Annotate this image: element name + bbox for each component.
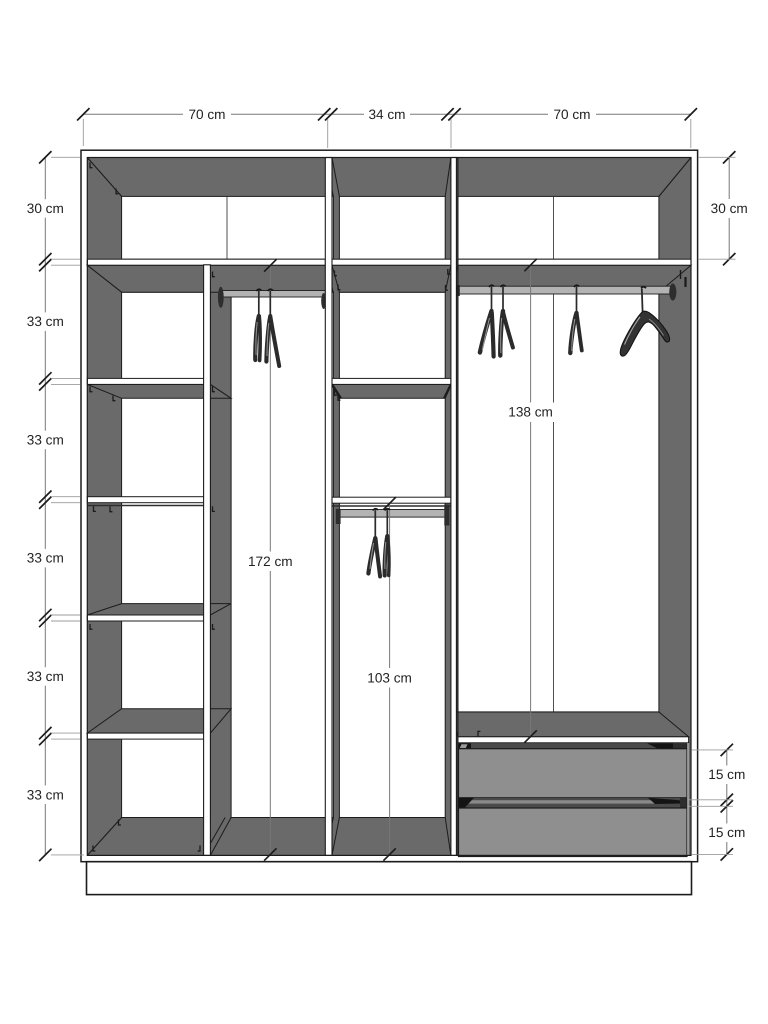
svg-text:70 cm: 70 cm bbox=[188, 107, 225, 122]
svg-text:33 cm: 33 cm bbox=[27, 551, 64, 566]
svg-text:15 cm: 15 cm bbox=[708, 825, 745, 840]
svg-text:33 cm: 33 cm bbox=[27, 669, 64, 684]
svg-text:172 cm: 172 cm bbox=[248, 554, 293, 569]
svg-text:33 cm: 33 cm bbox=[27, 314, 64, 329]
svg-text:30 cm: 30 cm bbox=[711, 201, 748, 216]
svg-text:34 cm: 34 cm bbox=[368, 107, 405, 122]
svg-text:15 cm: 15 cm bbox=[708, 767, 745, 782]
svg-text:30 cm: 30 cm bbox=[27, 201, 64, 216]
svg-text:70 cm: 70 cm bbox=[553, 107, 590, 122]
svg-text:138 cm: 138 cm bbox=[508, 405, 553, 420]
svg-text:33 cm: 33 cm bbox=[27, 787, 64, 802]
svg-text:103 cm: 103 cm bbox=[367, 670, 412, 685]
svg-text:33 cm: 33 cm bbox=[27, 433, 64, 448]
